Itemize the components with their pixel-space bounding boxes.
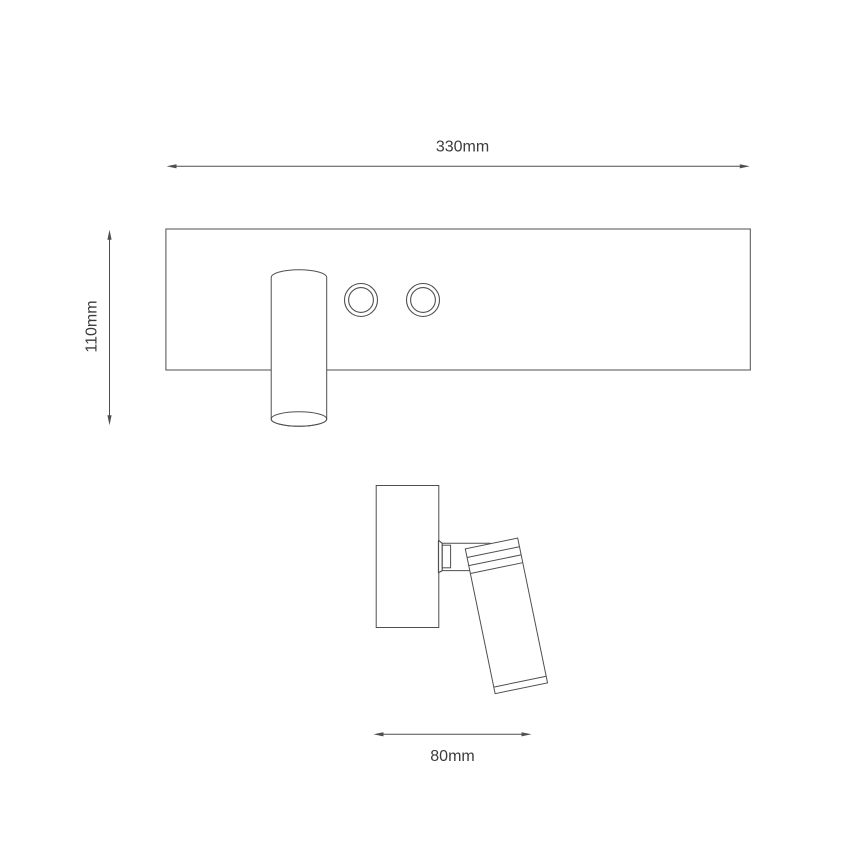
svg-text:80mm: 80mm [430,748,474,765]
svg-text:110mm: 110mm [84,300,101,352]
svg-text:330mm: 330mm [436,139,489,156]
